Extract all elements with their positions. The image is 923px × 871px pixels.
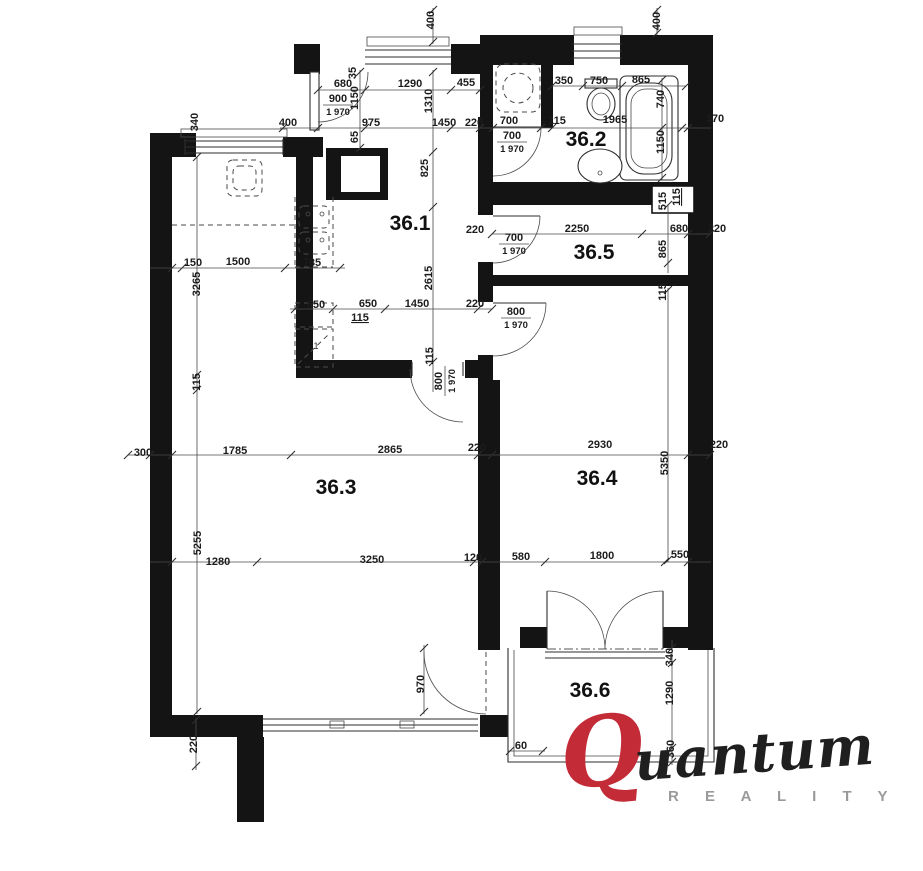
room-labels-group: 36.136.236.336.436.536.6: [316, 128, 618, 702]
dimension-label: 455: [457, 77, 475, 89]
dimension-label: 750: [590, 75, 608, 87]
dimension-label: 60: [515, 740, 527, 752]
dimension-label: 1965: [603, 114, 627, 126]
svg-text:700: 700: [505, 232, 523, 244]
dimension-label: 220: [466, 298, 484, 310]
dimension-label: 150: [184, 257, 202, 269]
dimension-label: 515: [657, 192, 669, 210]
dimension-label: 2250: [565, 223, 589, 235]
dimension-label: 2930: [588, 439, 612, 451]
dimension-label: 370: [706, 113, 724, 125]
svg-text:700: 700: [503, 130, 521, 142]
svg-text:1 970: 1 970: [504, 320, 528, 331]
door-spec-label: 8001 970: [433, 366, 458, 396]
dimension-label: 1290: [398, 78, 422, 90]
dimension-label: 220: [465, 117, 483, 129]
dimension-label: 550: [671, 549, 689, 561]
dimension-label: 1785: [223, 445, 247, 457]
room-36-2-label: 36.2: [566, 128, 607, 151]
dimension-label: 220: [466, 224, 484, 236]
dimension-label: 115: [351, 312, 369, 324]
dimension-label: 220: [708, 223, 726, 235]
dimension-label: 1150: [349, 86, 361, 110]
french-door-left-swing: [547, 591, 605, 649]
dimension-label: 340: [189, 113, 201, 131]
room-36-3-label: 36.3: [316, 476, 357, 499]
dimension-label: 115: [548, 115, 566, 127]
dimension-label: 1500: [226, 256, 250, 268]
room-36-1-label: 36.1: [390, 212, 431, 235]
floorplan-svg: 6801290455350750865400975145022070011519…: [0, 0, 923, 871]
room-36-6-label: 36.6: [570, 679, 611, 702]
dimension-label: 970: [415, 675, 427, 693]
balcony-group: [508, 648, 714, 762]
dimension-label: 65: [349, 131, 361, 143]
dimension-label: 865: [632, 74, 650, 86]
dimension-label: 650: [359, 298, 377, 310]
dimension-label: 5255: [192, 531, 204, 555]
svg-text:1 970: 1 970: [326, 107, 350, 118]
dimension-label: 1450: [432, 117, 456, 129]
dimension-label: 3250: [360, 554, 384, 566]
dimension-label: 680: [670, 223, 688, 235]
dimension-label: 350: [555, 75, 573, 87]
room-36-5-label: 36.5: [574, 241, 615, 264]
dimension-label: 35: [347, 67, 359, 79]
dimension-label: 120: [464, 552, 482, 564]
dimension-label: 700: [500, 115, 518, 127]
dimension-label: 1310: [423, 89, 435, 113]
room-36-4-label: 36.4: [577, 467, 618, 490]
dimension-label: 115: [424, 347, 436, 365]
dimension-label: 115: [671, 188, 683, 206]
dimension-label: 2865: [378, 444, 402, 456]
fixture-mark: 1: [313, 341, 318, 351]
dimension-label: 650: [307, 299, 325, 311]
svg-text:1 970: 1 970: [500, 144, 524, 155]
dimension-label: 400: [651, 12, 663, 30]
door-spec-label: 7001 970: [499, 232, 529, 257]
door-spec-label: 7001 970: [497, 130, 527, 155]
dimension-label: 740: [655, 90, 667, 108]
washbasin-icon: [578, 149, 622, 183]
washing-machine-icon: [496, 64, 540, 112]
dimension-label: 220: [188, 735, 200, 753]
svg-text:1 970: 1 970: [447, 369, 458, 393]
door-spec-label: 8001 970: [501, 306, 531, 331]
dimension-label: 220: [710, 439, 728, 451]
dimension-label: 3265: [191, 272, 203, 296]
entry-door-leaf: [310, 72, 319, 130]
dimension-label: 865: [657, 240, 669, 258]
dimension-label: 2615: [423, 266, 435, 290]
dimension-label: 360: [665, 740, 677, 758]
svg-text:800: 800: [507, 306, 525, 318]
svg-text:900: 900: [329, 93, 347, 105]
dimension-label: 400: [279, 117, 297, 129]
dimension-label: 1280: [206, 556, 230, 568]
svg-text:800: 800: [433, 372, 445, 390]
dimension-label: 5350: [659, 451, 671, 475]
dimension-label: 1290: [664, 681, 676, 705]
dimension-label: 785: [303, 257, 321, 269]
dimension-label: 1450: [405, 298, 429, 310]
dimension-label: 1800: [590, 550, 614, 562]
dimension-label: 220: [468, 442, 486, 454]
dimension-label: 340: [664, 648, 676, 666]
kitchen-sink-icon: [227, 160, 262, 196]
dimension-label: 975: [362, 117, 380, 129]
dimension-label: 400: [425, 11, 437, 29]
dimension-label: 300: [134, 447, 152, 459]
dimension-label: 115: [657, 283, 669, 301]
svg-text:1 970: 1 970: [502, 246, 526, 257]
floorplan-page: 6801290455350750865400975145022070011519…: [0, 0, 923, 871]
dimension-label: 1150: [655, 130, 667, 154]
dimension-label: 825: [419, 159, 431, 177]
dimension-label: 115: [191, 373, 203, 391]
dimension-label: 580: [512, 551, 530, 563]
french-door-right-swing: [605, 591, 663, 649]
balcony-door-swing: [424, 652, 486, 714]
